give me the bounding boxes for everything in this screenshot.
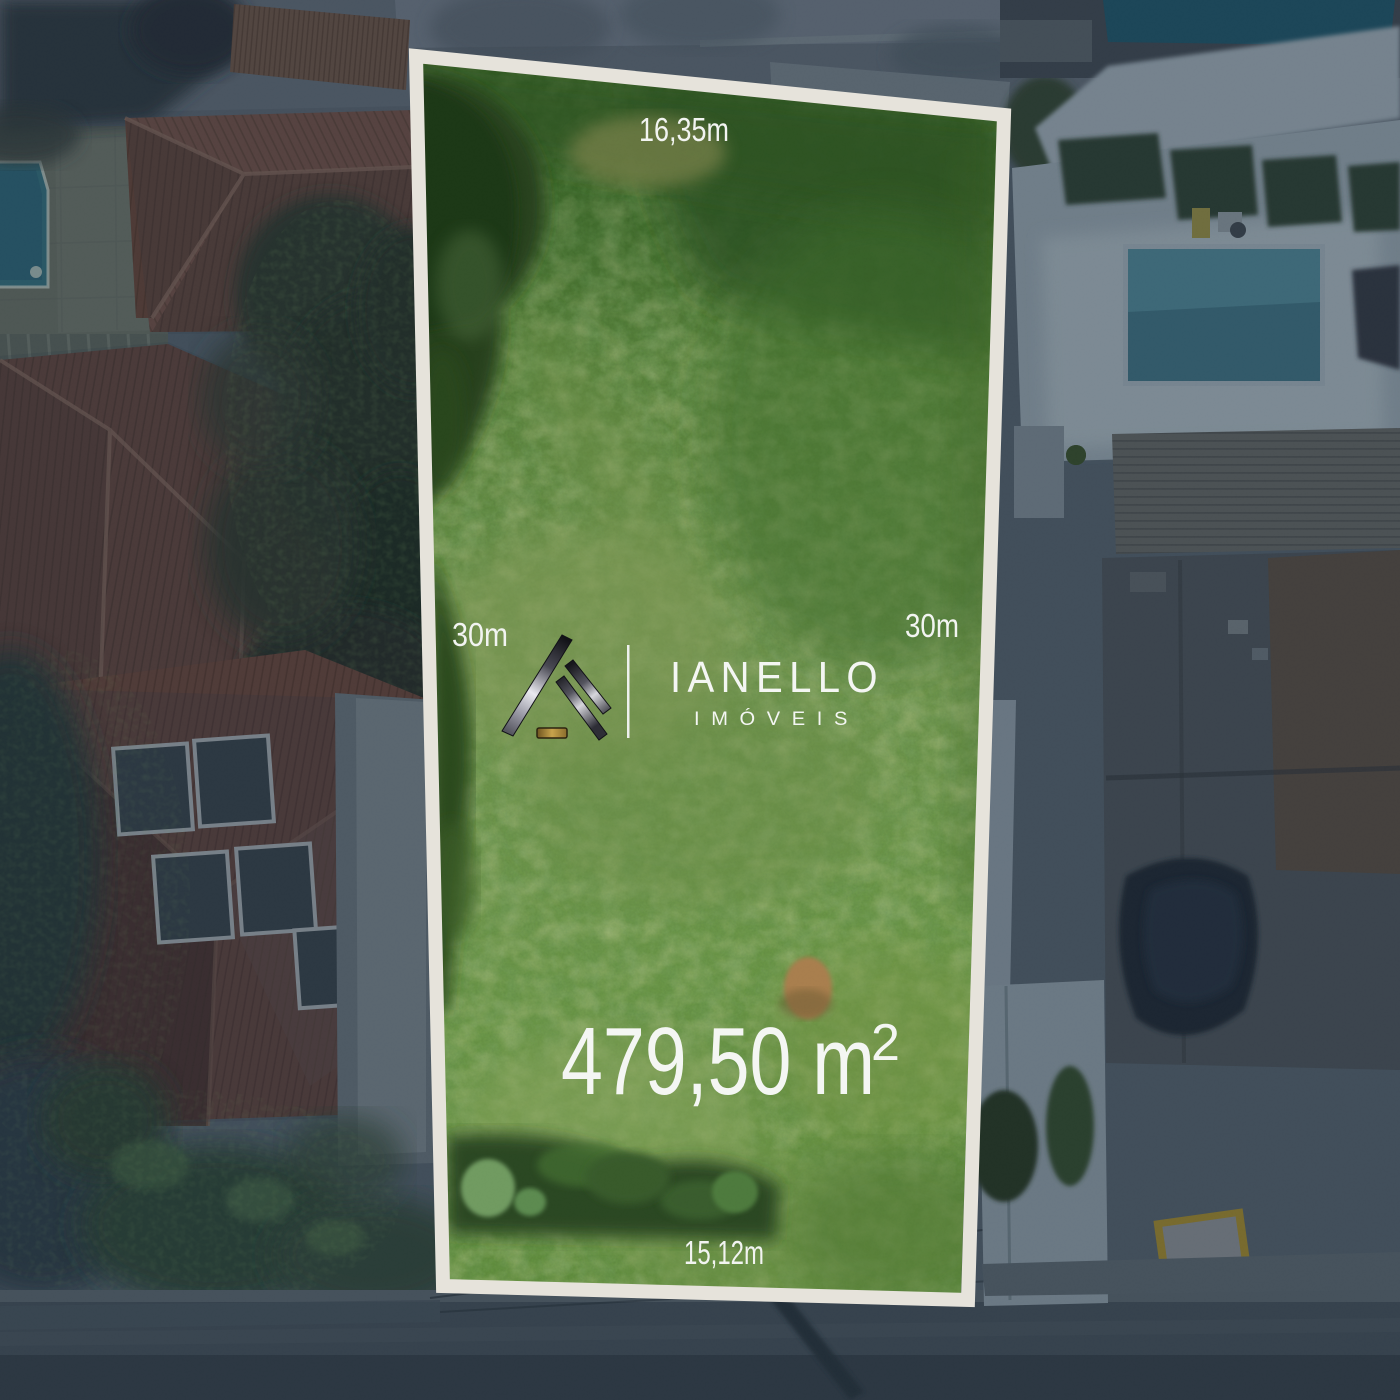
- svg-text:IANELLO: IANELLO: [670, 653, 884, 702]
- svg-text:30m: 30m: [452, 616, 508, 653]
- svg-text:16,35m: 16,35m: [639, 111, 729, 148]
- svg-text:15,12m: 15,12m: [684, 1234, 764, 1271]
- svg-text:30m: 30m: [905, 607, 959, 644]
- svg-text:479,50 m: 479,50 m: [561, 1008, 875, 1115]
- svg-text:IMÓVEIS: IMÓVEIS: [694, 708, 859, 730]
- svg-text:2: 2: [871, 1014, 900, 1072]
